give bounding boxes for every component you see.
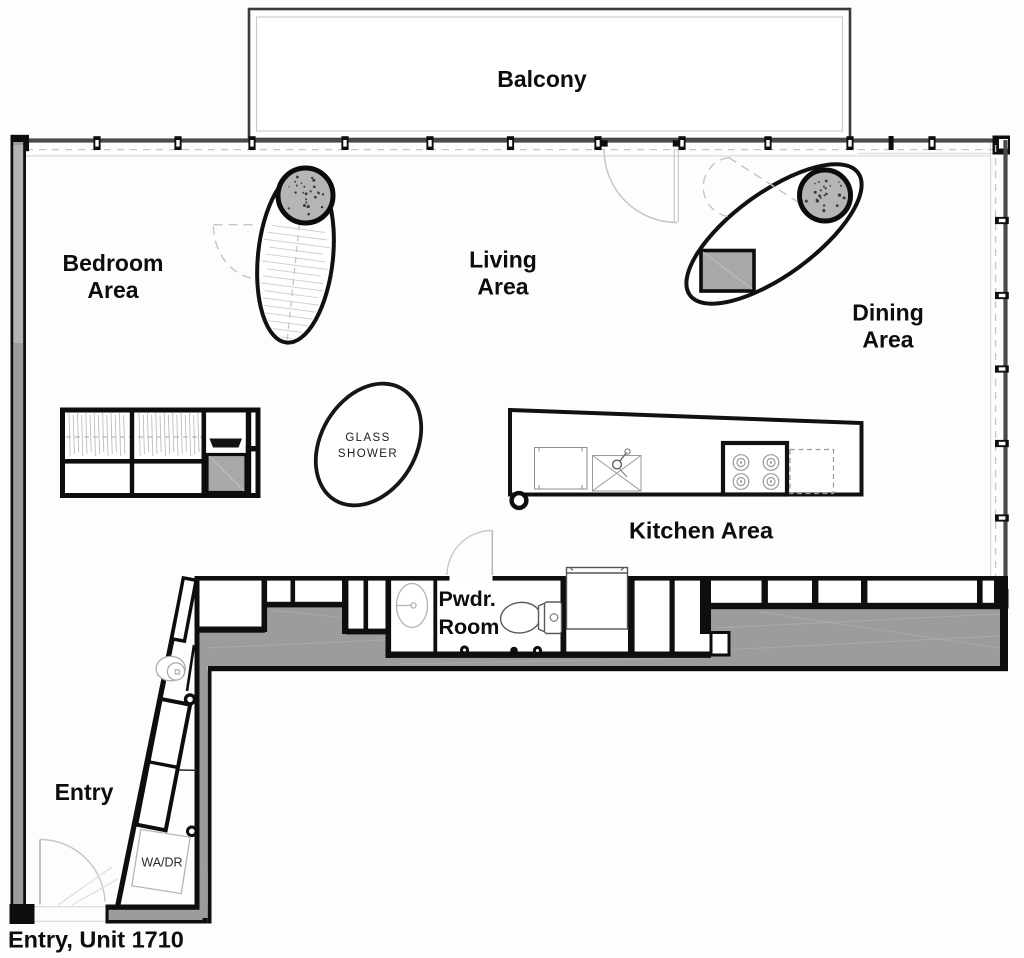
svg-text:Area: Area <box>477 274 528 300</box>
svg-text:Living: Living <box>469 247 537 273</box>
svg-text:Room: Room <box>439 615 500 639</box>
svg-text:Entry: Entry <box>55 779 114 805</box>
svg-text:Dining: Dining <box>852 300 924 326</box>
svg-text:Pwdr.: Pwdr. <box>439 587 496 611</box>
svg-text:Area: Area <box>862 327 913 353</box>
svg-text:SHOWER: SHOWER <box>338 448 398 460</box>
svg-text:Bedroom: Bedroom <box>63 250 164 276</box>
svg-text:WA/DR: WA/DR <box>141 856 182 870</box>
svg-text:GLASS: GLASS <box>345 432 390 444</box>
svg-text:Entry, Unit 1710: Entry, Unit 1710 <box>8 927 184 953</box>
svg-text:Balcony: Balcony <box>497 66 587 92</box>
svg-text:Area: Area <box>87 277 138 303</box>
svg-text:Kitchen Area: Kitchen Area <box>629 518 774 544</box>
